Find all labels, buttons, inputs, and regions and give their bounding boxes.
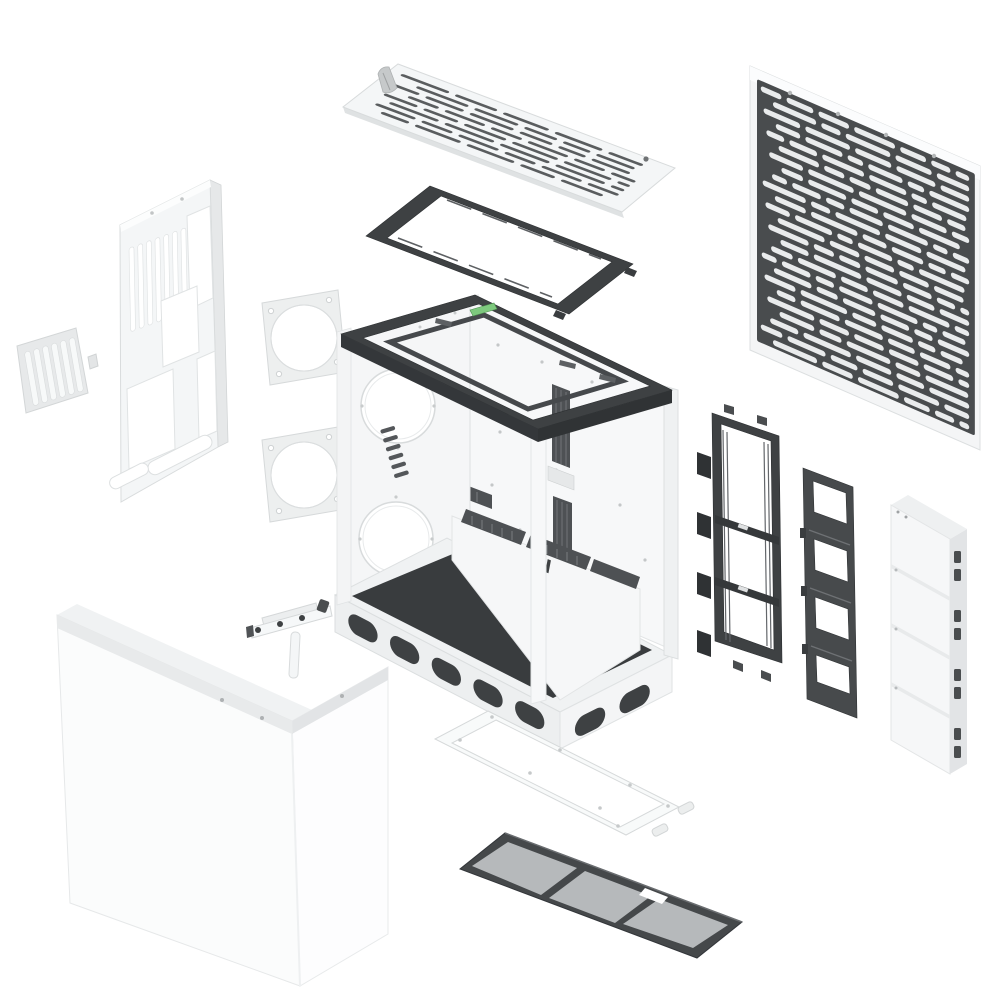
frame-foot [677,801,695,815]
cover-clip [954,569,961,581]
screw-hole [180,197,184,201]
screw [299,615,305,621]
bracket-tab [761,670,771,682]
gpu-support-bracket [246,599,332,679]
product-image: N [0,0,1000,1000]
screw-hole [326,297,331,302]
bracket-clips [697,452,711,657]
screw [895,628,898,631]
cable-cover-stack [891,495,967,774]
gasket-hole [271,442,337,508]
screw [905,516,908,519]
screw [895,687,898,690]
exploded-view-diagram: N [0,0,1000,1000]
bracket-tab [757,415,767,426]
support-post [289,632,300,678]
corner-column [531,423,546,704]
fan-mount-bracket [697,404,782,682]
fan-gasket-bottom [262,427,346,522]
screw-hole [150,211,154,215]
rear-io-panel [108,180,228,502]
ladder-tab [801,586,807,596]
cover-clip [954,728,961,740]
top-vent-panel [343,64,675,218]
cover-clip [954,551,961,563]
screw [260,716,264,720]
pin-hole [643,156,648,161]
cover-clip [954,628,961,640]
corner-column [664,386,678,659]
side-panel [57,604,388,986]
screw [255,627,261,633]
screw-hole [268,308,273,313]
cover-clip [954,746,961,758]
bracket-tab [733,660,743,672]
pci-slot-grille [17,328,98,413]
ladder-tab [802,644,808,654]
screw-hole [268,445,273,450]
corner-column [337,328,351,605]
cover-clip [954,669,961,681]
side-cutout [197,351,217,439]
screw [220,698,224,702]
psu-cutout [161,286,199,367]
bottom-dust-filter [460,833,742,958]
rail-slots [447,200,601,259]
front-mesh-panel [750,66,980,450]
screw [897,511,900,514]
rail-slots [398,238,552,297]
screw [895,569,898,572]
cover-clip [954,687,961,699]
ladder-frame [803,468,857,718]
grille-tab [88,354,98,369]
screw [340,694,344,698]
frame-foot [651,823,669,837]
cover-clip [954,610,961,622]
bracket-tab [724,404,734,415]
fan-gasket-top [262,290,346,385]
drive-bracket [800,468,857,718]
screw-hole [276,508,281,513]
end-cap [246,625,254,638]
mesh-area [757,79,975,436]
screw-hole [326,434,331,439]
screw [277,621,283,627]
ladder-tab [800,528,806,538]
gasket-hole [271,305,337,371]
screw-hole [276,371,281,376]
